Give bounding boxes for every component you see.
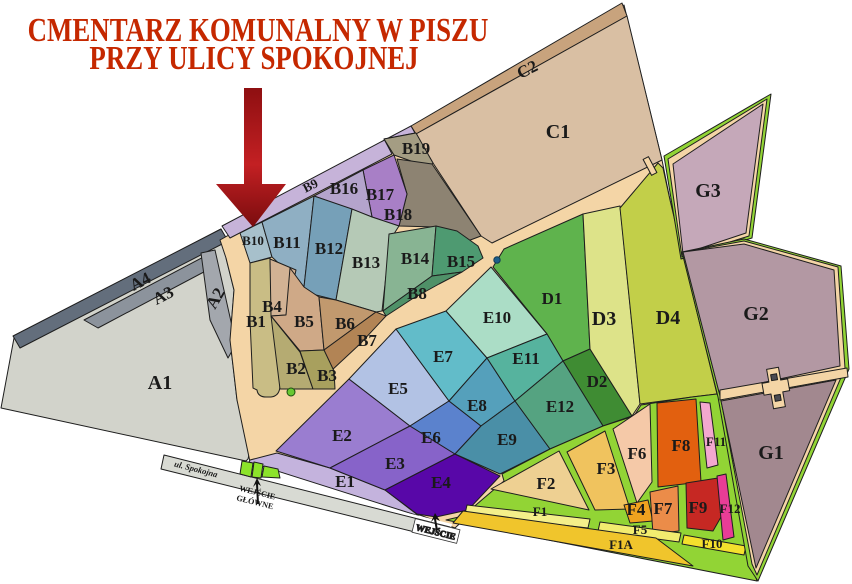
- svg-text:B18: B18: [384, 205, 412, 224]
- svg-text:B6: B6: [335, 314, 355, 333]
- svg-text:B5: B5: [294, 312, 314, 331]
- svg-text:E4: E4: [431, 473, 451, 492]
- svg-text:D2: D2: [587, 372, 608, 391]
- svg-text:E12: E12: [546, 397, 574, 416]
- svg-text:G1: G1: [758, 442, 784, 464]
- svg-text:E5: E5: [388, 379, 408, 398]
- svg-text:E1: E1: [335, 472, 355, 491]
- svg-text:B2: B2: [286, 359, 306, 378]
- svg-text:G2: G2: [743, 303, 769, 325]
- svg-text:B12: B12: [315, 239, 343, 258]
- svg-text:E7: E7: [433, 347, 453, 366]
- svg-text:F3: F3: [597, 459, 616, 478]
- svg-text:E2: E2: [332, 426, 352, 445]
- svg-text:B16: B16: [330, 179, 358, 198]
- svg-text:F10: F10: [702, 536, 723, 551]
- svg-text:E9: E9: [497, 430, 517, 449]
- svg-text:B14: B14: [401, 249, 430, 268]
- svg-text:F9: F9: [689, 498, 708, 517]
- svg-text:F7: F7: [654, 499, 673, 518]
- svg-text:F12: F12: [720, 501, 741, 516]
- svg-text:B10: B10: [242, 233, 264, 248]
- svg-text:D1: D1: [542, 289, 563, 308]
- svg-text:C1: C1: [546, 121, 570, 143]
- svg-text:F1A: F1A: [609, 537, 633, 552]
- svg-text:B17: B17: [366, 185, 395, 204]
- svg-text:B3: B3: [317, 366, 337, 385]
- svg-text:A1: A1: [148, 372, 172, 394]
- svg-text:B11: B11: [273, 233, 300, 252]
- svg-text:E11: E11: [512, 349, 539, 368]
- svg-text:G3: G3: [695, 180, 721, 202]
- svg-text:B15: B15: [447, 252, 475, 271]
- svg-text:F6: F6: [628, 444, 647, 463]
- svg-text:D4: D4: [656, 307, 680, 329]
- svg-text:B8: B8: [407, 284, 427, 303]
- svg-text:F5: F5: [633, 522, 648, 537]
- svg-text:E6: E6: [421, 428, 441, 447]
- svg-text:PRZY ULICY SPOKOJNEJ: PRZY ULICY SPOKOJNEJ: [89, 39, 418, 77]
- svg-text:B13: B13: [352, 253, 380, 272]
- svg-text:F8: F8: [672, 436, 691, 455]
- svg-text:B4: B4: [262, 297, 282, 316]
- svg-text:F11: F11: [706, 434, 726, 449]
- svg-text:F4: F4: [627, 500, 646, 519]
- svg-text:D3: D3: [592, 308, 616, 330]
- svg-text:F1: F1: [533, 504, 547, 519]
- svg-text:F2: F2: [537, 474, 556, 493]
- svg-text:B19: B19: [402, 139, 430, 158]
- svg-text:E10: E10: [483, 308, 511, 327]
- svg-text:E3: E3: [385, 454, 405, 473]
- svg-text:E8: E8: [467, 396, 487, 415]
- svg-text:B7: B7: [357, 331, 377, 350]
